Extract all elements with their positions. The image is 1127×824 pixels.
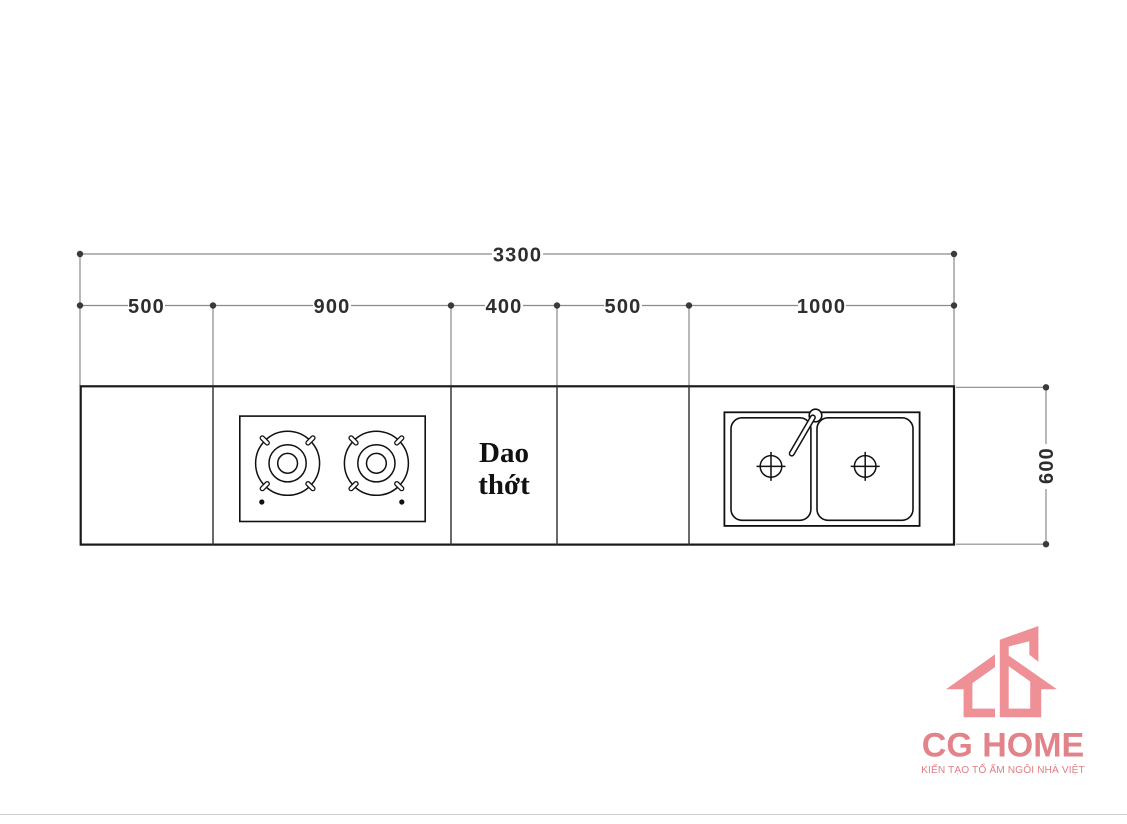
svg-text:1000: 1000 xyxy=(797,296,846,318)
svg-text:500: 500 xyxy=(605,296,642,318)
svg-text:thớt: thớt xyxy=(478,469,530,501)
svg-text:400: 400 xyxy=(486,296,523,318)
svg-text:Dao: Dao xyxy=(479,437,529,469)
svg-text:900: 900 xyxy=(314,296,351,318)
svg-text:500: 500 xyxy=(128,296,165,318)
svg-text:KIẾN TẠO TỔ ẤM NGÔI NHÀ VIỆT: KIẾN TẠO TỔ ẤM NGÔI NHÀ VIỆT xyxy=(921,763,1085,776)
svg-text:CG HOME: CG HOME xyxy=(922,727,1084,765)
svg-text:600: 600 xyxy=(1036,447,1058,484)
svg-text:3300: 3300 xyxy=(493,245,542,267)
